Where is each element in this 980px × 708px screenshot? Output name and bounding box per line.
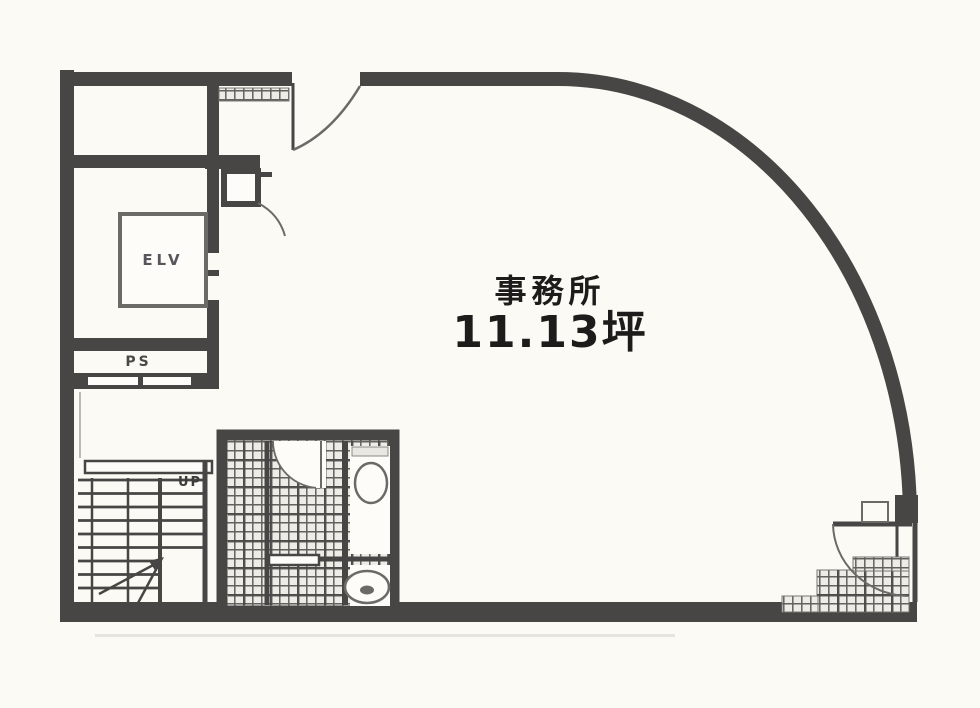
ps-louver-slot <box>143 377 191 385</box>
wall-tick <box>258 172 272 177</box>
room-name: 事務所 <box>494 274 605 309</box>
room-annotation: 事務所 11.13坪 <box>380 274 720 358</box>
scan-shadow <box>95 634 675 637</box>
balcony-door-frame <box>862 502 888 522</box>
duct-shaft-box <box>224 171 258 204</box>
curve-end-post <box>895 495 918 523</box>
stair-landing-edge <box>85 461 212 473</box>
toilet-bowl <box>355 463 387 503</box>
balcony-tile-grid <box>817 570 909 612</box>
room-area: 11.13坪 <box>452 309 647 357</box>
stair-stringers <box>92 478 128 602</box>
wall-hall-elv <box>60 155 219 168</box>
wall-entry-horizontal <box>205 155 260 169</box>
balcony-door-area <box>782 502 912 612</box>
balcony-tile-ledge <box>782 596 818 612</box>
inner-door-swing-arc <box>258 203 285 236</box>
pipe-shaft-label: PS <box>60 350 217 373</box>
elevator-label: ELV <box>120 214 206 306</box>
floor-plan: ELV PS UP 事務所 11.13坪 <box>0 0 980 708</box>
entrance-door-swing-arc <box>293 86 360 150</box>
wall-ps-hall <box>60 373 219 389</box>
bathroom-block <box>222 435 394 611</box>
balcony-tile-step <box>853 557 909 571</box>
counter-shelf <box>269 555 319 565</box>
wall-door-tick <box>207 270 219 276</box>
entry-tile-strip <box>219 88 289 101</box>
wall-elv-hall-lower <box>207 300 219 389</box>
wall-elv-hall-upper <box>207 168 219 253</box>
ps-louver-slot <box>88 377 138 385</box>
toilet-cistern <box>352 447 388 456</box>
stairs-up-label: UP <box>170 473 210 491</box>
staircase <box>78 392 212 616</box>
wash-basin-drain <box>360 586 374 595</box>
